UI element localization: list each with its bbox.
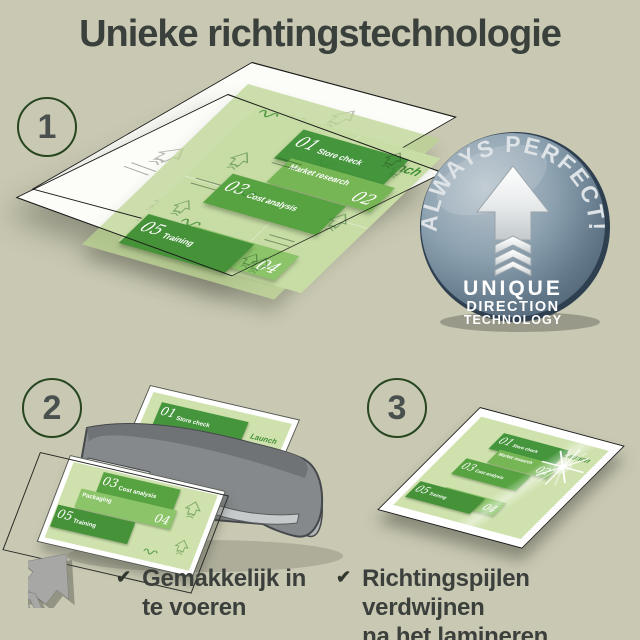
- badge-line1: UNIQUE: [463, 277, 563, 300]
- check-icon: ✔: [116, 567, 131, 622]
- check-icon: ✔: [336, 567, 351, 640]
- infographic-canvas: Unieke richtingstechnologie 1 Launch: [0, 0, 640, 640]
- bullet-line1: Gemakkelijk in: [142, 564, 306, 593]
- badge-line3: TECHNOLOGY: [464, 313, 562, 327]
- bullet-easy-feed: ✔ Gemakkelijk in te voeren: [116, 564, 306, 622]
- step-badge-1: 1: [17, 97, 77, 157]
- always-perfect-badge: ALWAYS PERFECT! UNIQUE DIRECTION TECHNOL…: [414, 124, 622, 336]
- bullet-arrows-disappear: ✔ Richtingspijlen verdwijnen na het lami…: [336, 564, 640, 640]
- step-badge-3: 3: [367, 378, 427, 438]
- gloss-shine: [393, 417, 609, 539]
- step-number: 3: [388, 389, 407, 428]
- bullet-line1: Richtingspijlen verdwijnen: [362, 564, 640, 622]
- page-title: Unieke richtingstechnologie: [0, 13, 640, 56]
- bullet-line2: te voeren: [142, 593, 306, 622]
- bullet-line2: na het lamineren: [362, 622, 640, 640]
- step-number: 1: [38, 108, 57, 147]
